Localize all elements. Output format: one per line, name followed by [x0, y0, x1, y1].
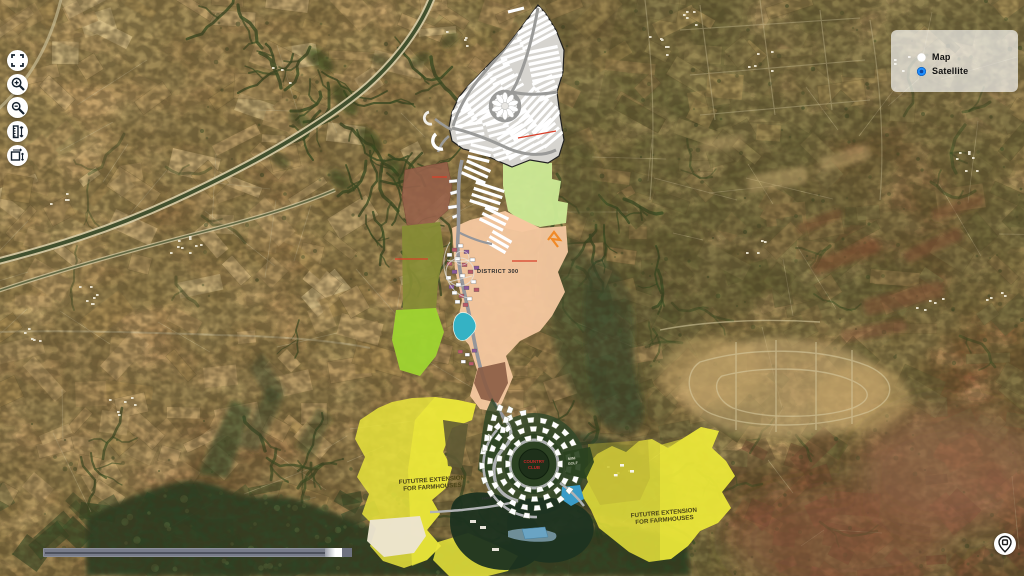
- svg-text:DISTRICT 300: DISTRICT 300: [477, 269, 518, 275]
- svg-text:CLUB: CLUB: [528, 465, 540, 470]
- svg-text:MINI: MINI: [568, 456, 576, 461]
- svg-text:COUNTRY: COUNTRY: [523, 459, 544, 464]
